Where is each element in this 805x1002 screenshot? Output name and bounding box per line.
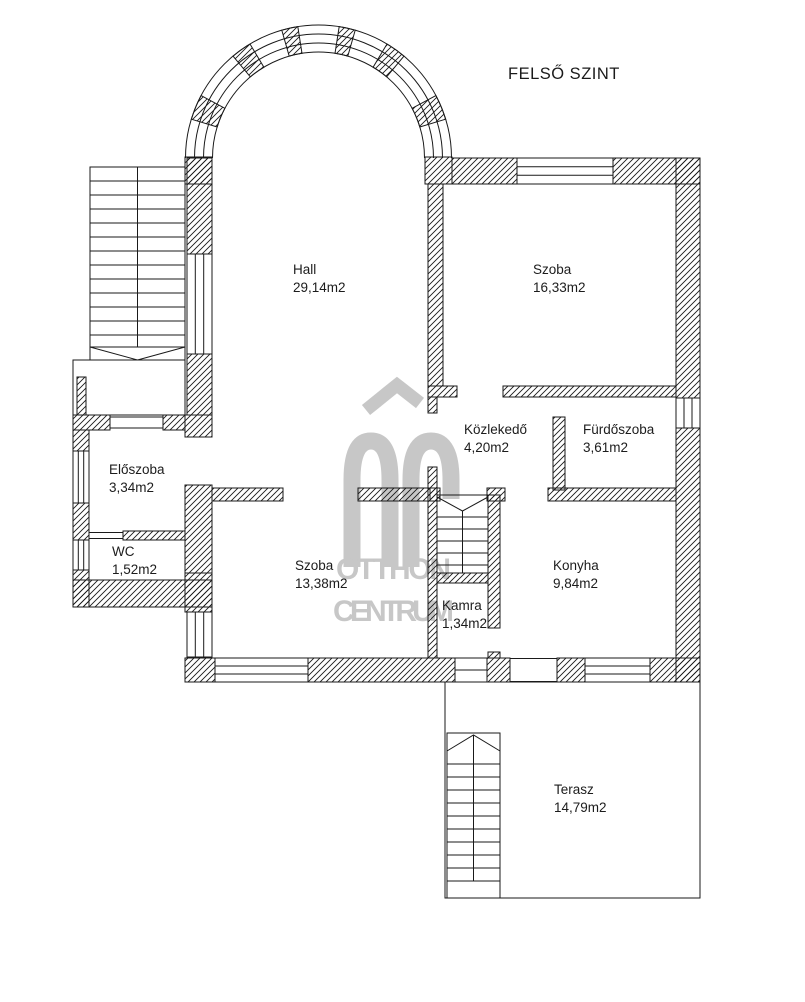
floor-plan-page: OTTHON CENTRUM bbox=[0, 0, 805, 1002]
window bbox=[585, 658, 650, 682]
room-area-label: 3,61m2 bbox=[583, 440, 628, 455]
room-name-label: Hall bbox=[293, 262, 316, 277]
window bbox=[517, 158, 613, 184]
floor-plan-canvas: OTTHON CENTRUM bbox=[0, 0, 805, 1002]
room-area-label: 4,20m2 bbox=[464, 440, 509, 455]
room-area-label: 29,14m2 bbox=[293, 280, 346, 295]
room-area-label: 1,34m2 bbox=[442, 616, 487, 631]
window bbox=[187, 612, 212, 657]
room-name-label: Szoba bbox=[295, 558, 334, 573]
window bbox=[676, 398, 700, 428]
room-name-label: Szoba bbox=[533, 262, 572, 277]
window bbox=[455, 658, 487, 682]
room-area-label: 3,34m2 bbox=[109, 480, 154, 495]
room-name-label: Terasz bbox=[554, 782, 594, 797]
room-area-label: 14,79m2 bbox=[554, 800, 607, 815]
window bbox=[73, 451, 89, 503]
room-area-label: 13,38m2 bbox=[295, 576, 348, 591]
window bbox=[187, 254, 212, 354]
window bbox=[73, 540, 89, 570]
room-area-label: 1,52m2 bbox=[112, 562, 157, 577]
room-area-label: 9,84m2 bbox=[553, 576, 598, 591]
room-name-label: Kamra bbox=[442, 598, 482, 613]
arch-base-right bbox=[425, 157, 452, 184]
room-name-label: Fürdőszoba bbox=[583, 422, 655, 437]
room-area-label: 16,33m2 bbox=[533, 280, 586, 295]
room-name-label: Közlekedő bbox=[464, 422, 527, 437]
room-name-label: Konyha bbox=[553, 558, 599, 573]
floor-title: FELSŐ SZINT bbox=[508, 64, 620, 83]
room-name-label: WC bbox=[112, 544, 135, 559]
window bbox=[215, 658, 308, 682]
room-name-label: Előszoba bbox=[109, 462, 165, 477]
